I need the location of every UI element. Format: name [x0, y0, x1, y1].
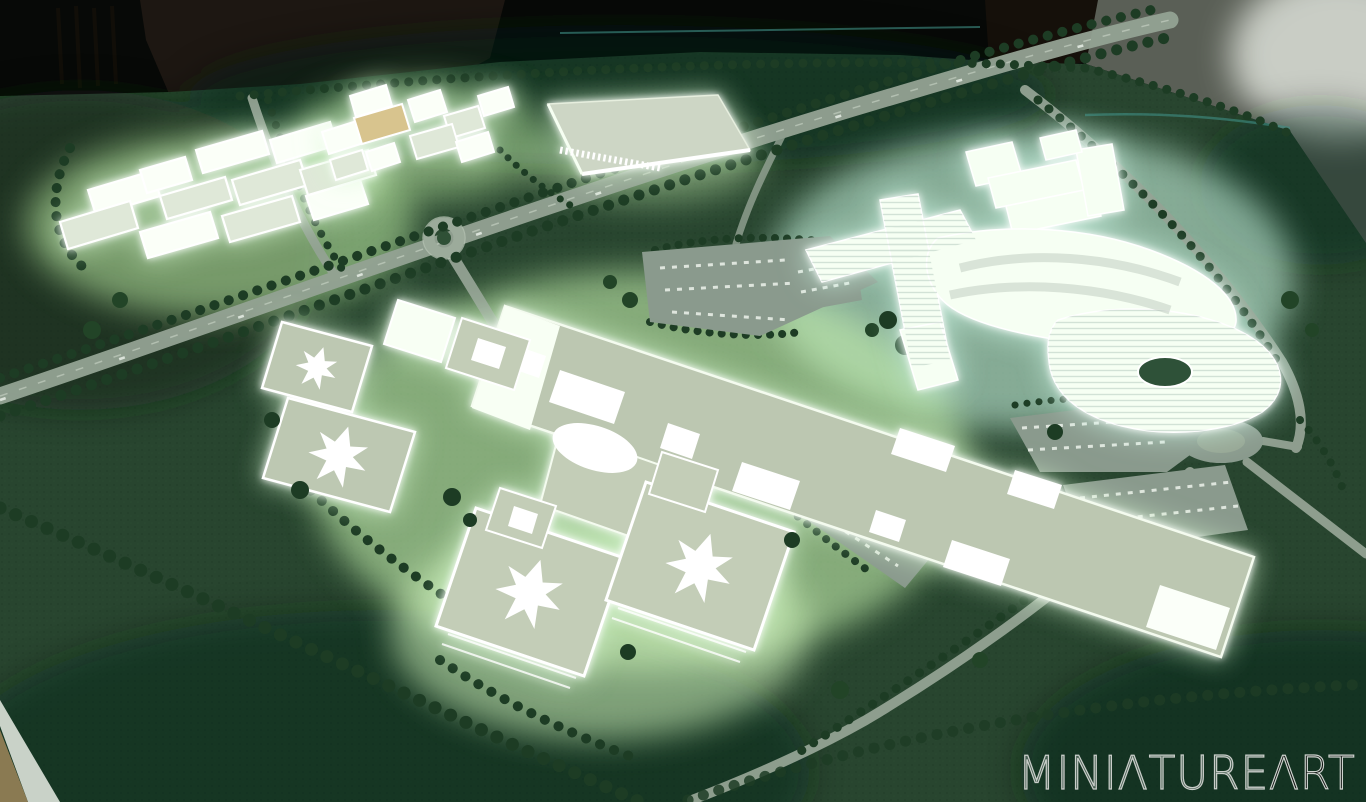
watermark: MINIΛTUREΛRT — [1018, 750, 1356, 796]
watermark-miniature: MINIΛTURE — [1018, 746, 1269, 800]
model-scene — [0, 0, 1366, 802]
watermark-art: ΛRT — [1269, 746, 1356, 800]
curved-wing-courtyard — [1138, 357, 1192, 387]
scale-model-photo: MINIΛTUREΛRT — [0, 0, 1366, 802]
